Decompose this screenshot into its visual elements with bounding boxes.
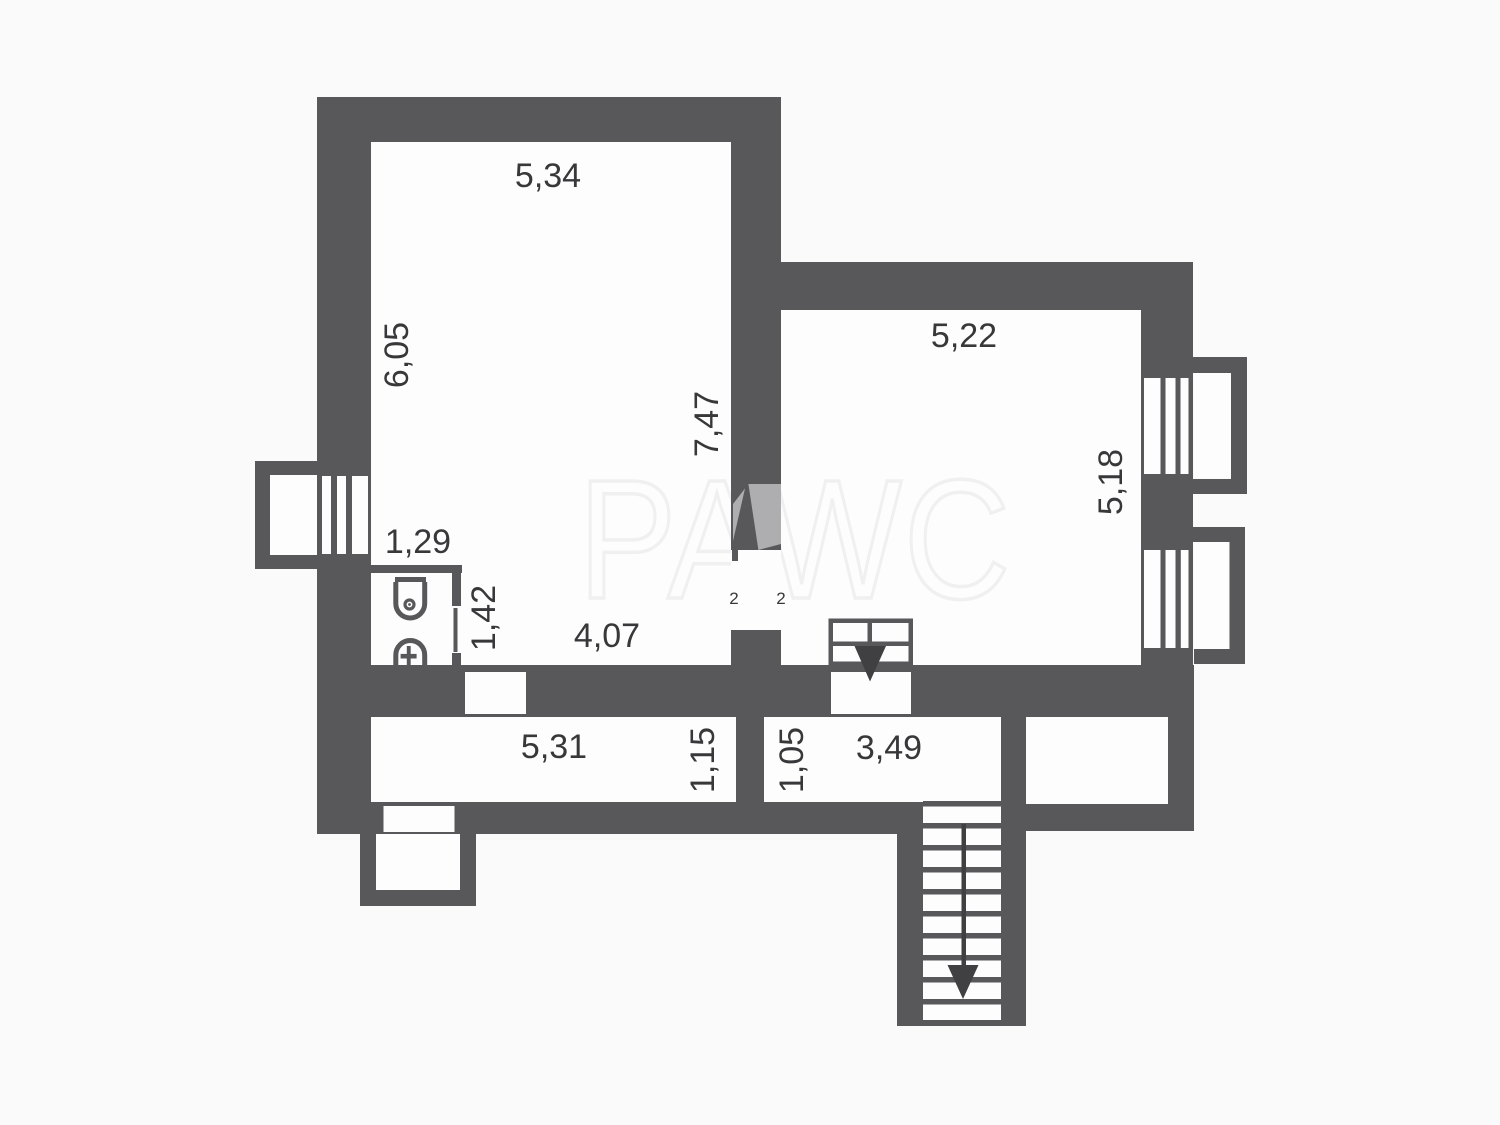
- svg-text:1,15: 1,15: [684, 727, 722, 793]
- svg-text:4,07: 4,07: [574, 617, 640, 655]
- svg-text:2: 2: [776, 589, 785, 608]
- svg-text:PAWC: PAWC: [578, 444, 1012, 634]
- svg-text:3,49: 3,49: [856, 729, 922, 767]
- svg-text:5,18: 5,18: [1092, 449, 1130, 515]
- svg-text:1,42: 1,42: [465, 585, 503, 651]
- svg-text:5,31: 5,31: [521, 728, 587, 766]
- svg-text:5,22: 5,22: [931, 317, 997, 355]
- svg-text:1,29: 1,29: [385, 523, 451, 561]
- svg-text:7,47: 7,47: [688, 391, 726, 457]
- svg-text:2: 2: [729, 589, 738, 608]
- svg-text:5,34: 5,34: [515, 157, 581, 195]
- svg-text:1,05: 1,05: [773, 727, 811, 793]
- svg-text:6,05: 6,05: [378, 322, 416, 388]
